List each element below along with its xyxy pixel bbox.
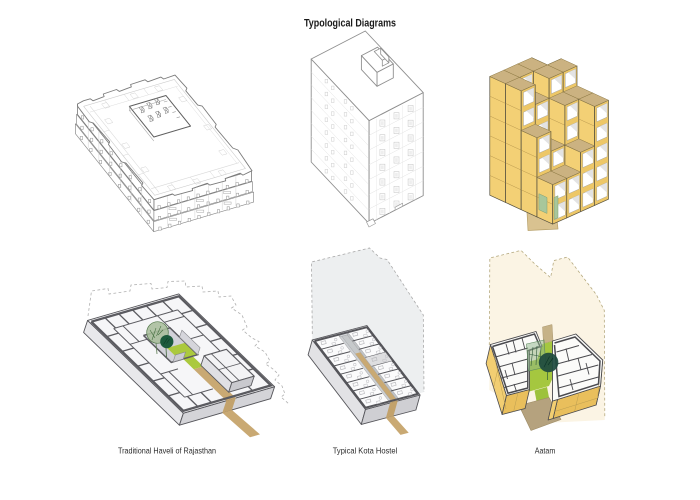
svg-text:Traditional Haveli of Rajastha: Traditional Haveli of Rajasthan (118, 446, 216, 456)
svg-text:Aatam: Aatam (535, 446, 556, 456)
svg-text:Typical Kota Hostel: Typical Kota Hostel (333, 446, 398, 456)
svg-text:Typological Diagrams: Typological Diagrams (304, 18, 396, 30)
